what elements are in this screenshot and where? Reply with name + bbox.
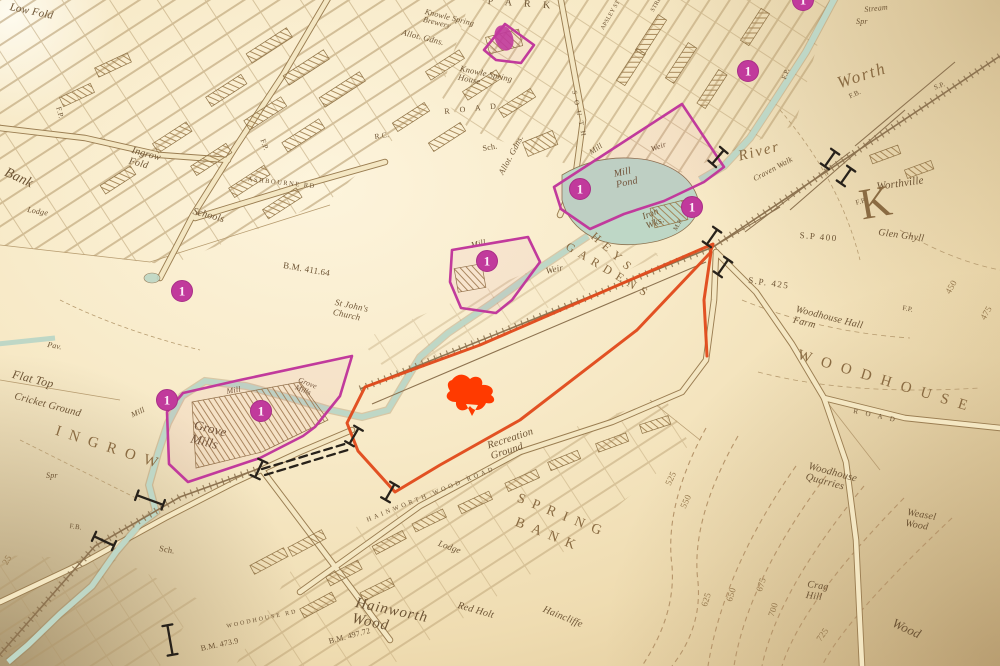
annotation-bridge-mark bbox=[92, 532, 116, 550]
plot-marker-number: 1 bbox=[164, 393, 171, 408]
plot-marker-number: 1 bbox=[800, 0, 807, 8]
annotation-bridge-mark bbox=[135, 491, 165, 510]
annotation-bridge-mark bbox=[714, 257, 733, 277]
annotation-black-dashed-link bbox=[265, 449, 351, 475]
annotation-railway-land-outline bbox=[347, 244, 713, 492]
plot-marker-number: 1 bbox=[745, 64, 752, 79]
map-photo: Low FoldBankLodgeIngrow FoldSchoolsASHBO… bbox=[0, 0, 1000, 666]
plot-marker-number: 1 bbox=[179, 284, 186, 299]
plot-marker-number: 1 bbox=[484, 254, 491, 269]
annotation-bridge-mark bbox=[162, 624, 177, 655]
plot-marker-number: 1 bbox=[258, 404, 265, 419]
annotation-bridge-mark bbox=[821, 149, 840, 169]
red-splat-marker bbox=[447, 375, 495, 416]
plot-marker-number: 1 bbox=[577, 182, 584, 197]
annotation-orange-spur bbox=[704, 252, 711, 356]
annotation-bridge-mark bbox=[837, 166, 856, 186]
annotation-plot-heys-mill bbox=[450, 237, 540, 313]
plot-marker-number: 1 bbox=[689, 200, 696, 215]
annotation-svg: 11111111 bbox=[0, 0, 1000, 666]
